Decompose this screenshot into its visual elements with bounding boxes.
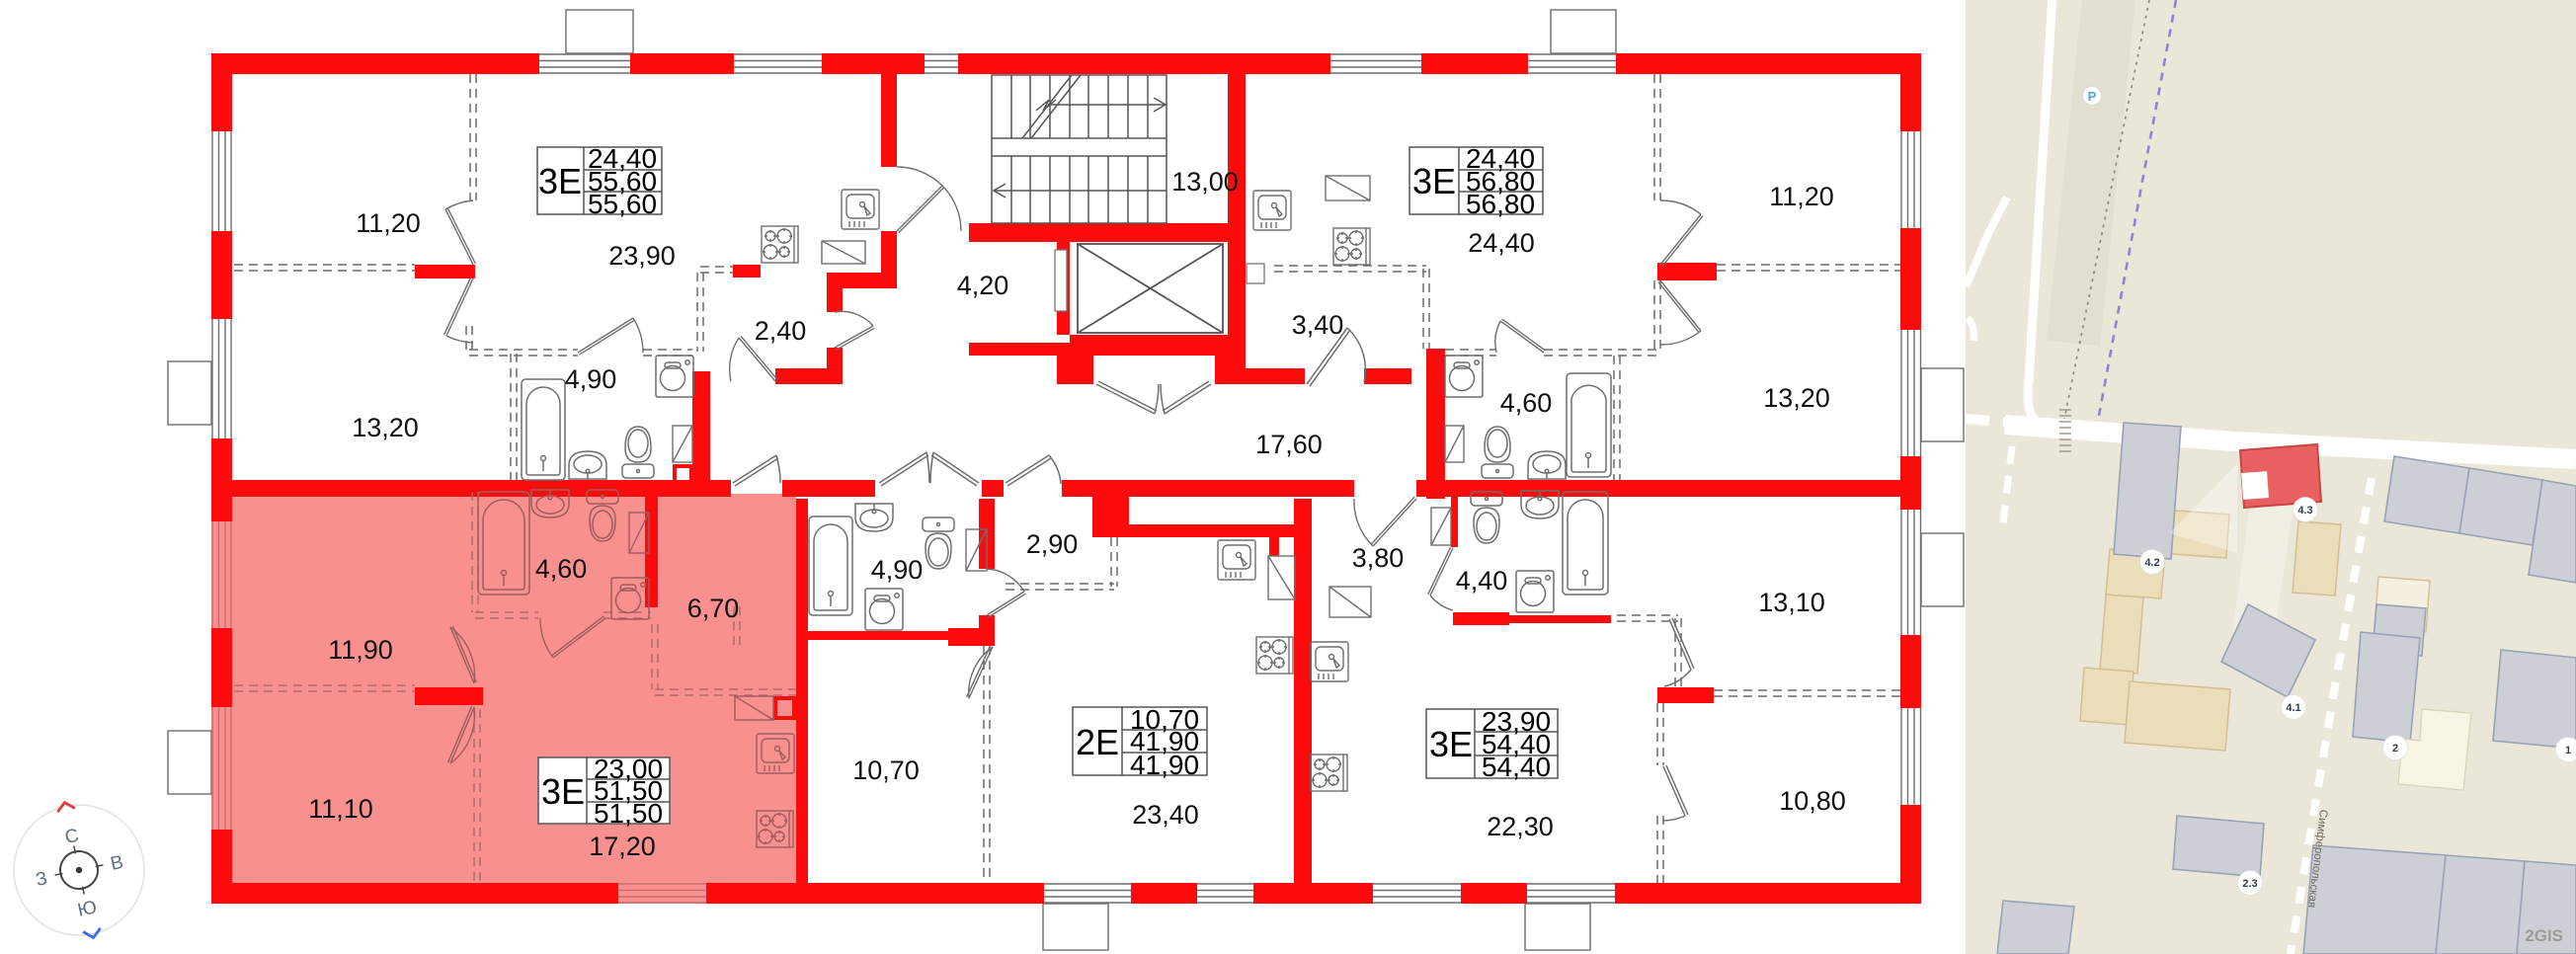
svg-text:11,20: 11,20	[356, 208, 421, 238]
svg-text:4,40: 4,40	[1456, 566, 1508, 596]
svg-text:2,40: 2,40	[755, 316, 807, 346]
svg-text:11,20: 11,20	[1769, 182, 1834, 211]
svg-text:2,90: 2,90	[1026, 529, 1079, 559]
svg-text:41,90: 41,90	[1130, 750, 1199, 780]
svg-text:4.2: 4.2	[2144, 557, 2159, 569]
svg-text:24,40: 24,40	[1468, 228, 1535, 258]
svg-text:4.3: 4.3	[2297, 505, 2312, 517]
svg-text:4,60: 4,60	[535, 554, 588, 584]
svg-text:6,70: 6,70	[687, 594, 740, 623]
svg-text:22,30: 22,30	[1487, 812, 1554, 841]
svg-text:3Е: 3Е	[1412, 161, 1456, 201]
svg-text:3Е: 3Е	[1429, 724, 1473, 764]
svg-text:13,00: 13,00	[1171, 167, 1239, 197]
svg-text:4,90: 4,90	[565, 364, 617, 394]
svg-text:13,10: 13,10	[1758, 588, 1825, 617]
svg-text:56,80: 56,80	[1466, 189, 1535, 219]
svg-text:51,50: 51,50	[594, 798, 663, 829]
svg-text:13,20: 13,20	[1763, 383, 1830, 413]
svg-text:10,80: 10,80	[1779, 786, 1846, 816]
svg-text:2Е: 2Е	[1076, 722, 1119, 762]
svg-text:2: 2	[2392, 743, 2398, 755]
svg-text:4.1: 4.1	[2286, 702, 2300, 714]
svg-text:10,70: 10,70	[852, 755, 920, 785]
svg-text:17,20: 17,20	[589, 832, 656, 861]
svg-text:4,20: 4,20	[957, 271, 1009, 300]
svg-text:4,60: 4,60	[1500, 388, 1553, 418]
svg-text:3,40: 3,40	[1292, 310, 1344, 340]
svg-text:2GIS: 2GIS	[2525, 926, 2563, 945]
svg-text:3Е: 3Е	[538, 161, 582, 201]
svg-text:1: 1	[2565, 745, 2571, 756]
svg-text:11,10: 11,10	[308, 794, 373, 824]
svg-text:17,60: 17,60	[1255, 430, 1323, 459]
svg-text:4,90: 4,90	[871, 555, 924, 585]
svg-text:23,90: 23,90	[608, 241, 676, 271]
svg-text:54,40: 54,40	[1482, 752, 1551, 782]
svg-text:3Е: 3Е	[541, 771, 585, 812]
svg-text:2.3: 2.3	[2242, 878, 2257, 890]
svg-text:23,40: 23,40	[1132, 800, 1199, 830]
svg-text:11,90: 11,90	[328, 635, 393, 665]
svg-text:55,60: 55,60	[588, 189, 657, 219]
svg-text:P: P	[2088, 89, 2097, 104]
svg-text:13,20: 13,20	[352, 413, 419, 442]
svg-text:3,80: 3,80	[1352, 543, 1405, 573]
